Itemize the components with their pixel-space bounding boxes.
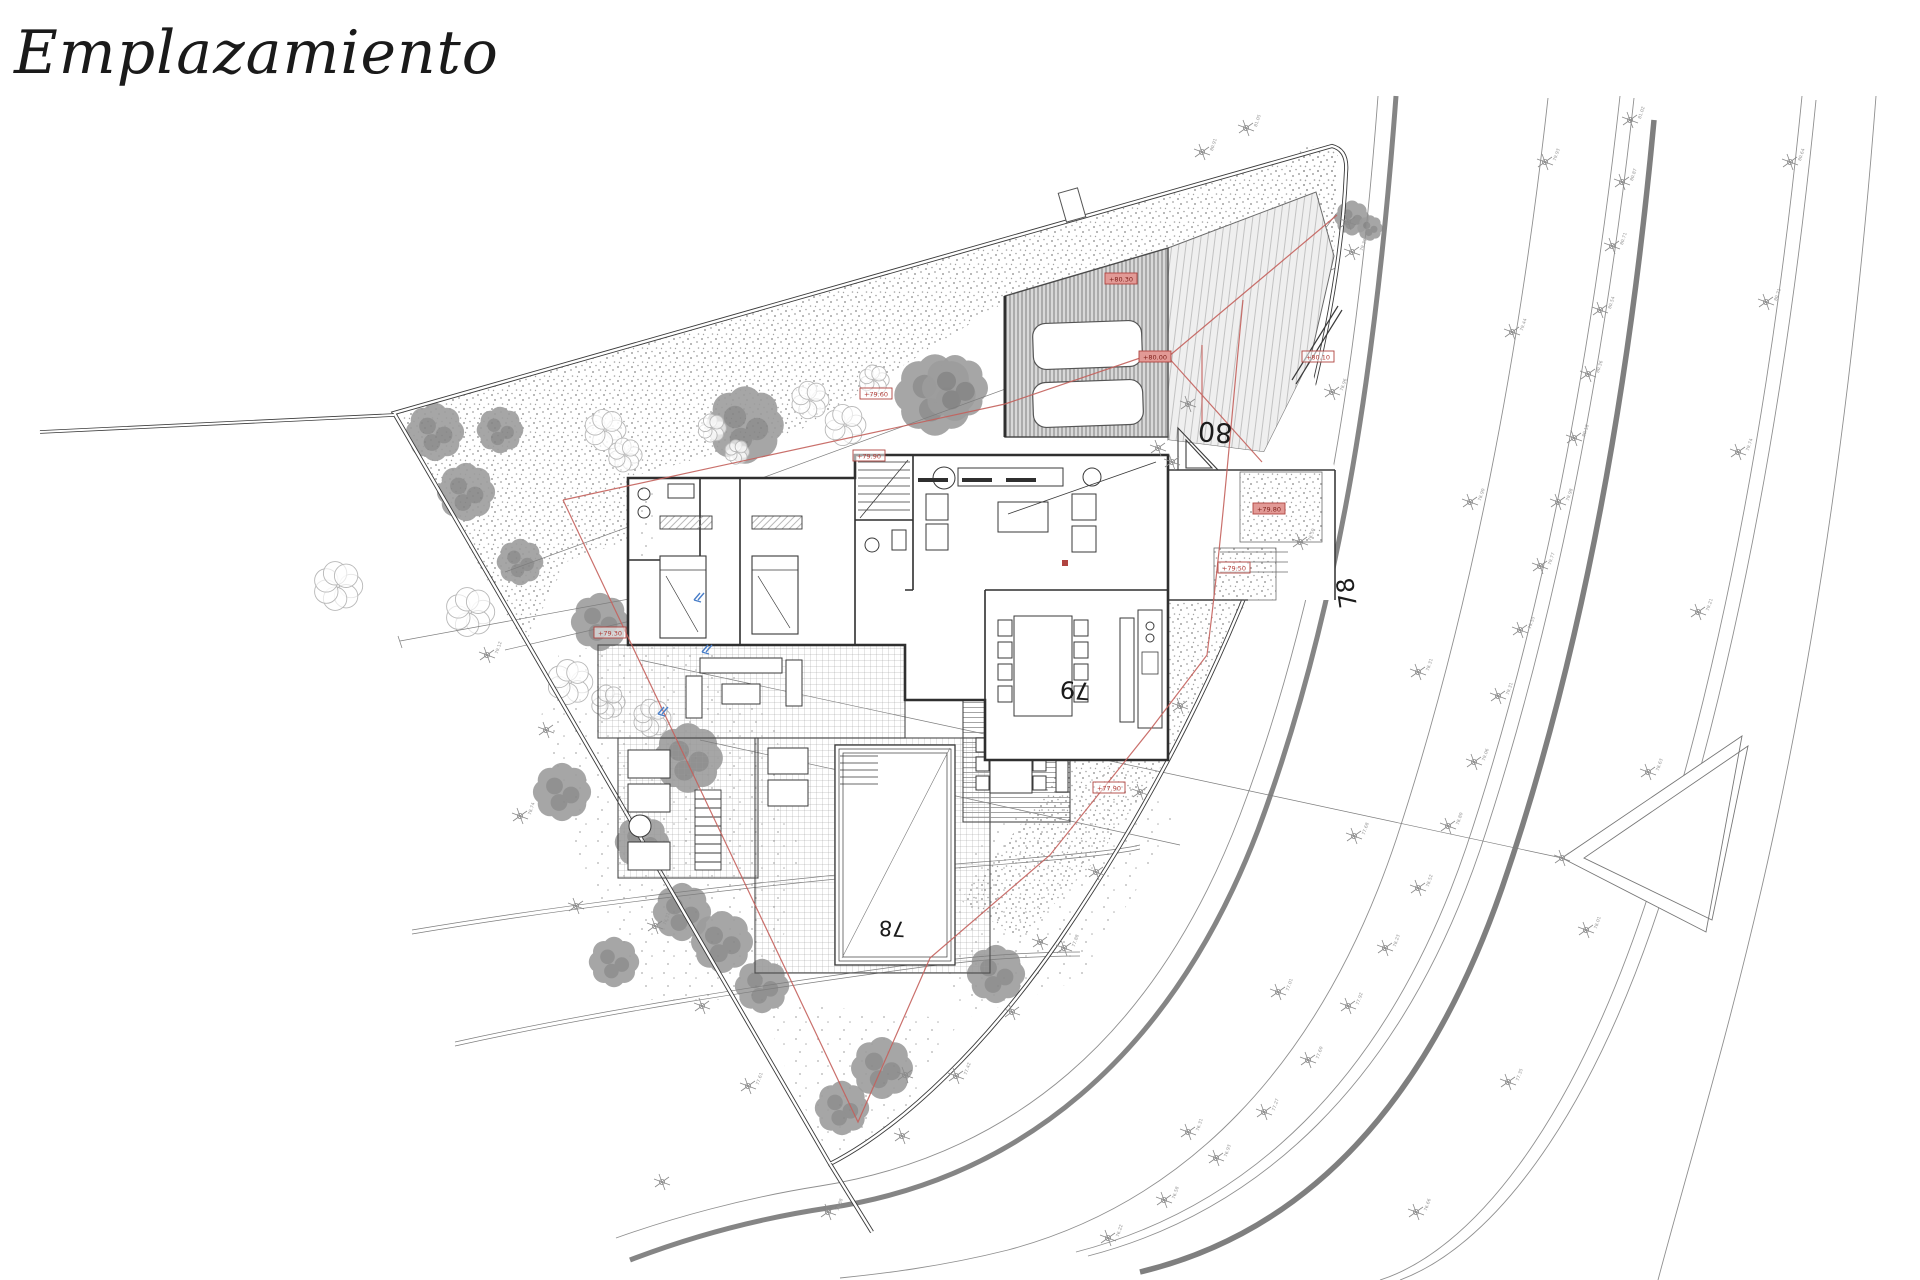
survey-marker-icon: 79.55 bbox=[1512, 616, 1537, 638]
red-level-text: +80.10 bbox=[1306, 354, 1330, 362]
contour-elevation-label: 80 bbox=[1197, 415, 1233, 448]
red-level-annotation: +80.00 bbox=[1139, 351, 1171, 362]
spot-elevation-label: 79.93 bbox=[1552, 148, 1562, 162]
spot-elevation-label: 78.63 bbox=[1655, 758, 1665, 772]
survey-marker-icon: 81.02 bbox=[1622, 106, 1647, 128]
red-level-annotation: +79.80 bbox=[1253, 503, 1285, 514]
spot-elevation-label: 79.77 bbox=[1547, 552, 1557, 566]
survey-marker-icon: 78.74 bbox=[512, 802, 537, 824]
red-level-text: +79.90 bbox=[857, 453, 881, 461]
red-level-text: +79.30 bbox=[598, 630, 622, 638]
spot-elevation-label: 77.27 bbox=[1271, 1098, 1281, 1112]
garden-stairs bbox=[695, 790, 721, 870]
survey-marker-icon: 77.27 bbox=[1256, 1098, 1281, 1120]
survey-marker-icon: 79.21 bbox=[1690, 598, 1715, 620]
survey-marker-icon: 79.12 bbox=[479, 641, 504, 663]
survey-marker-icon: 81.05 bbox=[1238, 114, 1263, 136]
survey-marker-icon: 79.44 bbox=[1504, 318, 1529, 340]
spot-elevation-label: 79.55 bbox=[1527, 616, 1537, 630]
red-level-annotation: +79.60 bbox=[860, 388, 892, 399]
red-level-text: +77.90 bbox=[1097, 785, 1121, 793]
survey-marker-icon: 80.91 bbox=[1194, 138, 1219, 160]
tree-icon bbox=[477, 407, 524, 454]
spot-elevation-label: 80.36 bbox=[1595, 360, 1605, 374]
survey-marker-icon: 80.87 bbox=[1614, 168, 1639, 190]
tree-icon bbox=[497, 539, 544, 586]
tree-icon bbox=[437, 463, 495, 521]
contour-elevation-label: 78 bbox=[878, 916, 906, 941]
survey-marker-icon: 77.68 bbox=[1346, 822, 1371, 844]
site-plan-sheet: 81.0280.8780.7180.5480.3680.1879.9879.77… bbox=[0, 0, 1920, 1280]
spot-elevation-label: 81.05 bbox=[1253, 114, 1263, 128]
sheet-title: Emplazamiento bbox=[14, 18, 499, 88]
survey-marker-icon: 76.66 bbox=[1408, 1198, 1433, 1220]
survey-marker-icon: 78.31 bbox=[1410, 658, 1435, 680]
spot-elevation-label: 78.52 bbox=[1425, 874, 1435, 888]
red-level-annotation: +79.30 bbox=[594, 627, 626, 638]
contour-elevation-label: 79 bbox=[1059, 675, 1091, 705]
survey-marker-icon: 78.52 bbox=[1410, 874, 1435, 896]
survey-marker-icon: 79.77 bbox=[1532, 552, 1557, 574]
spot-elevation-label: 79.44 bbox=[1519, 318, 1529, 332]
tree-outline-icon bbox=[447, 588, 495, 637]
spot-elevation-label: 81.02 bbox=[1637, 106, 1647, 120]
red-level-annotation bbox=[1062, 560, 1068, 566]
spot-elevation-label: 79.38 bbox=[1359, 238, 1369, 252]
spot-elevation-label: 80.71 bbox=[1619, 232, 1629, 246]
red-level-text: +79.60 bbox=[864, 391, 888, 399]
site-plan-drawing: 81.0280.8780.7180.5480.3680.1879.9879.77… bbox=[0, 0, 1920, 1280]
red-level-annotation: +80.10 bbox=[1302, 351, 1334, 362]
spot-elevation-label: 78.01 bbox=[1593, 916, 1603, 930]
survey-marker-icon: 79.38 bbox=[1344, 238, 1369, 260]
survey-marker-icon: 78.23 bbox=[1377, 934, 1402, 956]
survey-marker-icon: 76.58 bbox=[1156, 1186, 1181, 1208]
spot-elevation-label: 78.80 bbox=[1455, 812, 1465, 826]
spot-elevation-label: 76.22 bbox=[1115, 1224, 1125, 1238]
survey-marker-icon: 78.80 bbox=[1440, 812, 1465, 834]
survey-marker-icon: 76.31 bbox=[1180, 1118, 1205, 1140]
survey-marker-icon: 79.06 bbox=[1466, 748, 1491, 770]
spot-elevation-label: 76.66 bbox=[1423, 1198, 1433, 1212]
tree-outline-icon bbox=[698, 414, 726, 442]
red-level-annotation: +77.90 bbox=[1093, 782, 1125, 793]
red-level-text: +80.00 bbox=[1143, 354, 1167, 362]
spot-elevation-label: 80.87 bbox=[1629, 168, 1639, 182]
contour-elevation-label: 78 bbox=[1331, 576, 1363, 610]
spot-elevation-label: 80.64 bbox=[1797, 148, 1807, 162]
spot-elevation-label: 77.60 bbox=[1315, 1046, 1325, 1060]
survey-marker-icon: 78.01 bbox=[1578, 916, 1603, 938]
spot-elevation-label: 77.61 bbox=[755, 1072, 765, 1086]
survey-marker-icon: 80.71 bbox=[1604, 232, 1629, 254]
spot-elevation-label: 76.31 bbox=[1195, 1118, 1205, 1132]
spot-elevation-label: 80.21 bbox=[1773, 288, 1783, 302]
spot-elevation-label: 79.21 bbox=[1705, 598, 1715, 612]
survey-marker-icon: 80.18 bbox=[1566, 424, 1591, 446]
spot-elevation-label: 80.18 bbox=[1581, 424, 1591, 438]
tree-outline-icon bbox=[315, 562, 363, 611]
spot-elevation-label: 78.23 bbox=[1392, 934, 1402, 948]
red-level-annotation: +79.50 bbox=[1218, 562, 1250, 573]
red-level-text: +79.50 bbox=[1222, 565, 1246, 573]
survey-marker-icon: 76.93 bbox=[1208, 1144, 1233, 1166]
red-level-text: +79.80 bbox=[1257, 506, 1281, 514]
survey-marker-icon: 77.35 bbox=[1500, 1068, 1525, 1090]
red-level-annotation: +80.30 bbox=[1105, 273, 1137, 284]
spot-elevation-label: 76.93 bbox=[1223, 1144, 1233, 1158]
survey-marker-icon: 77.92 bbox=[1340, 992, 1365, 1014]
survey-marker-icon: 76.22 bbox=[1100, 1224, 1125, 1246]
survey-marker-icon: 78.63 bbox=[1640, 758, 1665, 780]
survey-marker-icon bbox=[654, 1174, 670, 1190]
spot-elevation-label: 79.74 bbox=[1745, 438, 1755, 452]
survey-marker-icon bbox=[894, 1128, 910, 1144]
spot-elevation-label: 79.12 bbox=[494, 641, 504, 655]
spot-elevation-label: 76.58 bbox=[1171, 1186, 1181, 1200]
tree-outline-icon bbox=[825, 404, 866, 445]
survey-marker-icon: 79.74 bbox=[1730, 438, 1755, 460]
spot-elevation-label: 77.35 bbox=[1515, 1068, 1525, 1082]
survey-marker-icon: 77.61 bbox=[740, 1072, 765, 1094]
tree-icon bbox=[922, 355, 988, 421]
tree-icon bbox=[1357, 215, 1382, 240]
tree-icon bbox=[589, 937, 639, 987]
survey-marker-icon: 77.60 bbox=[1300, 1046, 1325, 1068]
sight-triangle bbox=[1562, 736, 1748, 932]
red-level-annotation: +79.90 bbox=[853, 450, 885, 461]
spot-elevation-label: 80.91 bbox=[1209, 138, 1219, 152]
red-level-text: +80.30 bbox=[1109, 276, 1133, 284]
survey-marker-icon: 79.31 bbox=[1490, 682, 1515, 704]
spot-elevation-label: 77.68 bbox=[1361, 822, 1371, 836]
car-2 bbox=[1032, 379, 1144, 428]
survey-marker-icon: 78.90 bbox=[1462, 488, 1487, 510]
spot-elevation-label: 77.01 bbox=[1285, 978, 1295, 992]
spot-elevation-label: 77.92 bbox=[1355, 992, 1365, 1006]
tree-icon bbox=[533, 763, 591, 821]
spot-elevation-label: 77.42 bbox=[963, 1062, 973, 1076]
survey-marker-icon: 80.21 bbox=[1758, 288, 1783, 310]
spot-elevation-label: 78.74 bbox=[527, 802, 537, 816]
survey-marker-icon: 80.54 bbox=[1592, 296, 1617, 318]
spot-elevation-label: 79.06 bbox=[1481, 748, 1491, 762]
survey-marker-icon bbox=[1150, 440, 1166, 456]
spot-elevation-label: 78.31 bbox=[1425, 658, 1435, 672]
survey-marker-icon: 77.01 bbox=[1270, 978, 1295, 1000]
